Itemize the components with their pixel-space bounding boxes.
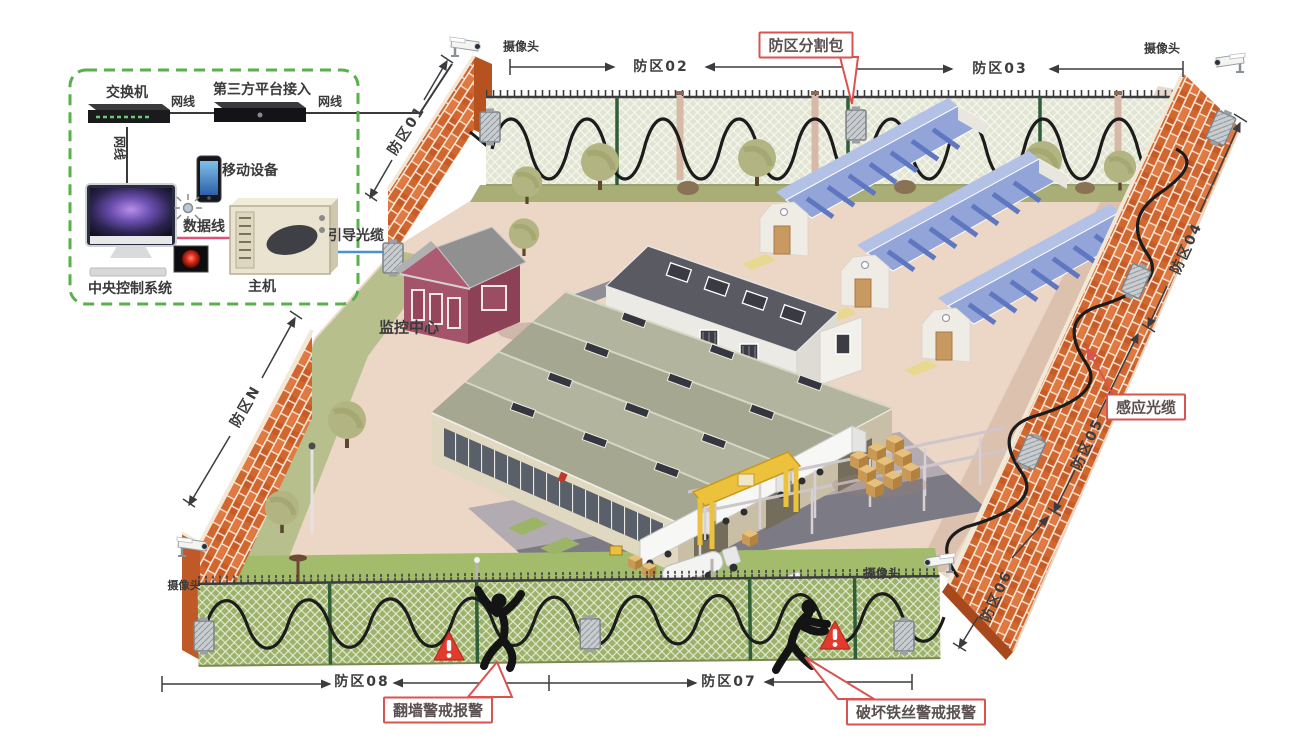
net-cable-label-a: 网线 bbox=[171, 93, 195, 110]
monitoring-center-label: 监控中心 bbox=[379, 317, 439, 338]
site-illustration bbox=[0, 0, 1304, 746]
central-control-label: 中央控制系统 bbox=[88, 278, 172, 298]
camera-label-top-left: 摄像头 bbox=[503, 38, 539, 55]
callout-sensing-cable: 感应光缆 bbox=[1106, 394, 1186, 421]
net-cable-label-c: 网线 bbox=[112, 136, 129, 160]
camera-top-left-icon bbox=[450, 37, 481, 56]
camera-label-bottom-left: 摄像头 bbox=[168, 577, 201, 593]
bottom-fence bbox=[198, 568, 945, 666]
corner-junction-box-bl bbox=[194, 618, 214, 655]
camera-label-bottom-right: 摄像头 bbox=[864, 565, 900, 582]
zone-splitter-box bbox=[846, 107, 866, 144]
central-computer-icon bbox=[86, 184, 176, 276]
camera-top-right-icon bbox=[1215, 53, 1246, 72]
zone-label-03: 防区03 bbox=[972, 58, 1027, 78]
network-switch-icon bbox=[88, 104, 170, 123]
zone-label-07: 防区07 bbox=[701, 671, 756, 691]
net-cable-label-b: 网线 bbox=[318, 93, 342, 110]
alarm-monitor-icon bbox=[174, 246, 208, 272]
fence-junction-box bbox=[480, 109, 500, 146]
camera-label-top-right: 摄像头 bbox=[1144, 40, 1180, 57]
corner-junction-box-br bbox=[894, 618, 914, 655]
guide-cable-label: 引导光缆 bbox=[328, 225, 384, 245]
host-label: 主机 bbox=[248, 276, 276, 296]
callout-cut-wire-alarm: 破坏铁丝警戒报警 bbox=[846, 699, 986, 726]
mobile-phone-icon bbox=[197, 156, 221, 202]
callout-climb-alarm: 翻墙警戒报警 bbox=[383, 697, 493, 724]
data-cable-label: 数据线 bbox=[183, 216, 225, 236]
third-party-label: 第三方平台接入 bbox=[213, 79, 311, 99]
host-machine-icon bbox=[230, 198, 338, 274]
switch-label: 交换机 bbox=[106, 82, 148, 102]
mobile-device-label: 移动设备 bbox=[222, 160, 278, 180]
third-party-platform-icon bbox=[214, 102, 306, 122]
perimeter-security-diagram: 交换机 网线 第三方平台接入 网线 网线 移动设备 数据线 中央控制系统 主机 … bbox=[0, 0, 1304, 746]
callout-zone-splitter: 防区分割包 bbox=[758, 32, 853, 59]
zone-label-08: 防区08 bbox=[334, 671, 389, 691]
zone-label-02: 防区02 bbox=[633, 56, 688, 76]
